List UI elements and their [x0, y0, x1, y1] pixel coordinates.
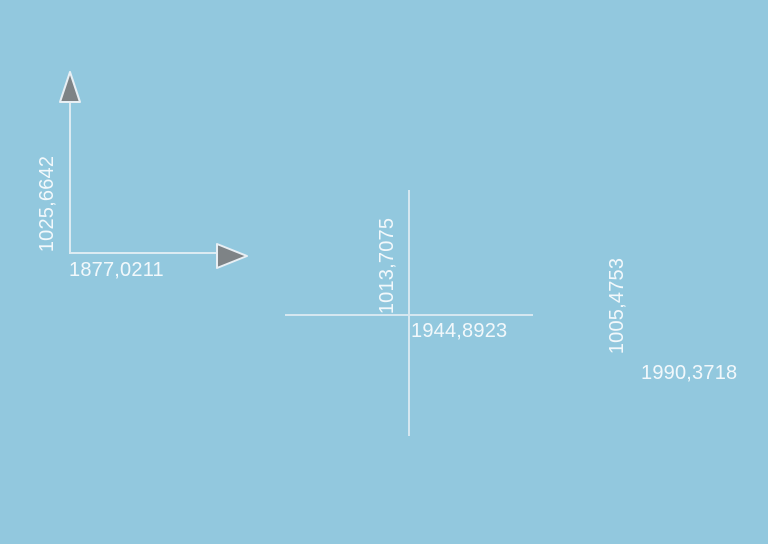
axis-y-coordinate-label: 1025,6642: [37, 156, 57, 252]
axis-vertical-line: [69, 102, 71, 254]
floating-y-coordinate-label: 1005,4753: [607, 258, 627, 354]
axis-horizontal-line: [69, 252, 219, 254]
right-arrowhead-icon: [215, 242, 249, 270]
drawing-canvas[interactable]: 1025,6642 1877,0211 1013,7075 1944,8923 …: [0, 0, 768, 544]
floating-x-coordinate-label: 1990,3718: [641, 363, 737, 383]
axis-x-coordinate-label: 1877,0211: [69, 260, 164, 280]
crosshair-x-coordinate-label: 1944,8923: [411, 321, 507, 341]
crosshair-vertical-line: [408, 190, 410, 436]
crosshair-y-coordinate-label: 1013,7075: [377, 218, 397, 314]
up-arrowhead-icon: [58, 70, 82, 104]
crosshair-horizontal-line: [285, 314, 533, 316]
